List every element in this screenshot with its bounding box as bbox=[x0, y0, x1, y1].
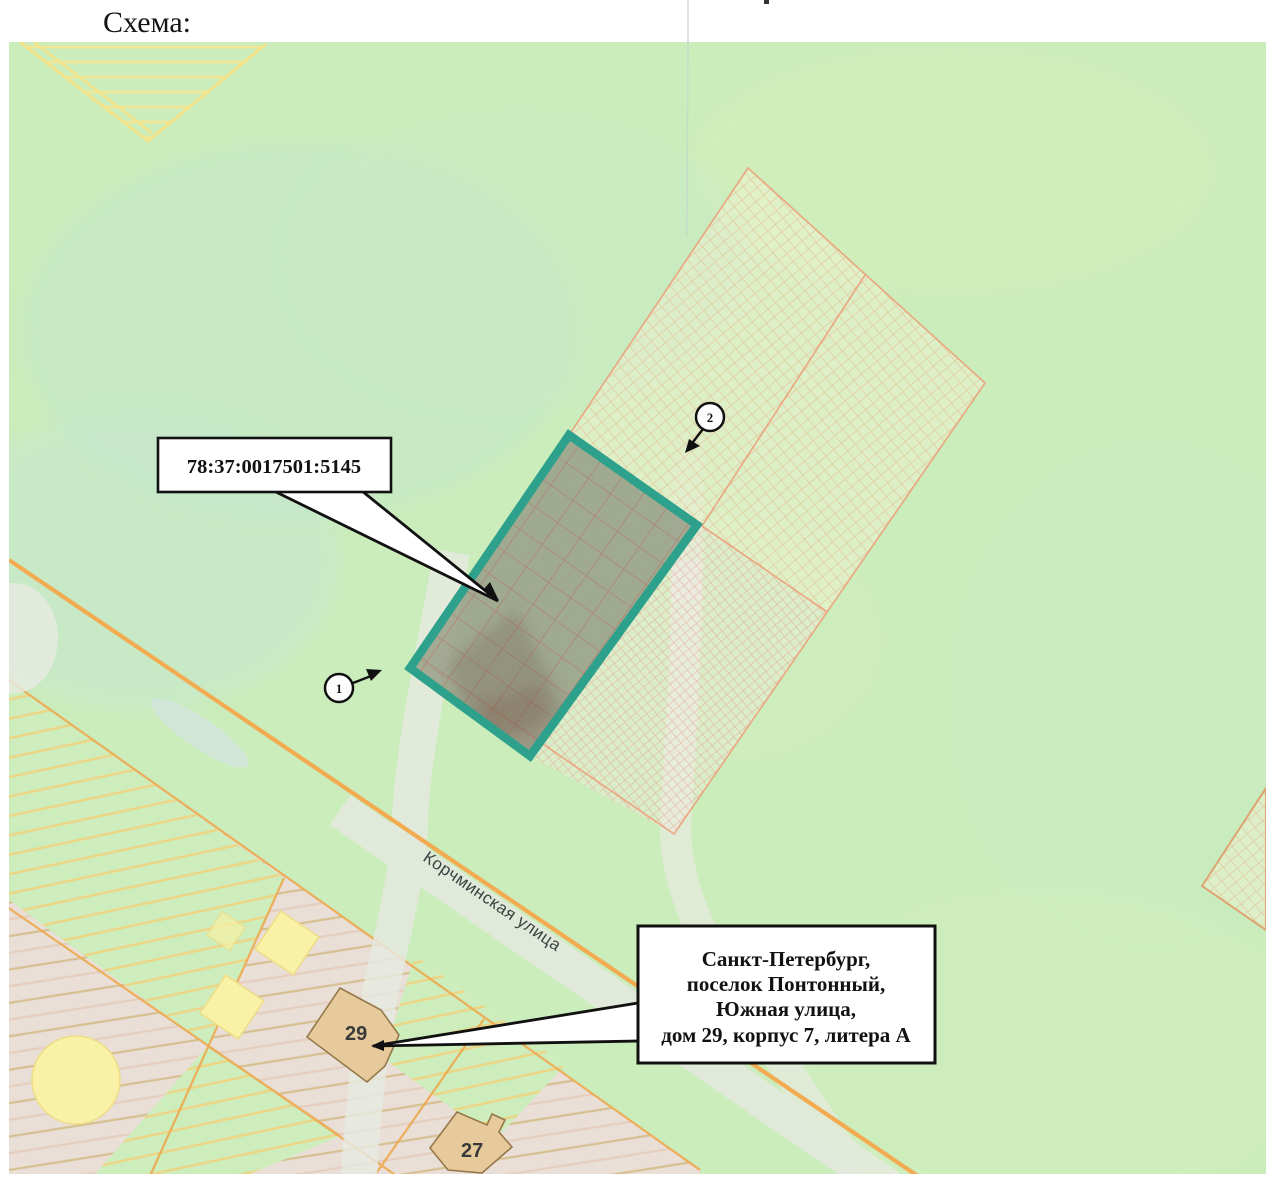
svg-text:1: 1 bbox=[336, 682, 342, 696]
svg-text:29: 29 bbox=[345, 1023, 367, 1045]
svg-text:78:37:0017501:5145: 78:37:0017501:5145 bbox=[187, 456, 361, 478]
svg-text:поселок Понтонный,: поселок Понтонный, bbox=[687, 972, 886, 996]
svg-text:27: 27 bbox=[461, 1140, 483, 1162]
svg-text:Южная улица,: Южная улица, bbox=[716, 997, 856, 1021]
svg-text:дом 29, корпус 7, литера А: дом 29, корпус 7, литера А bbox=[661, 1023, 911, 1047]
svg-text:Санкт-Петербург,: Санкт-Петербург, bbox=[702, 947, 870, 971]
svg-text:2: 2 bbox=[707, 411, 713, 425]
